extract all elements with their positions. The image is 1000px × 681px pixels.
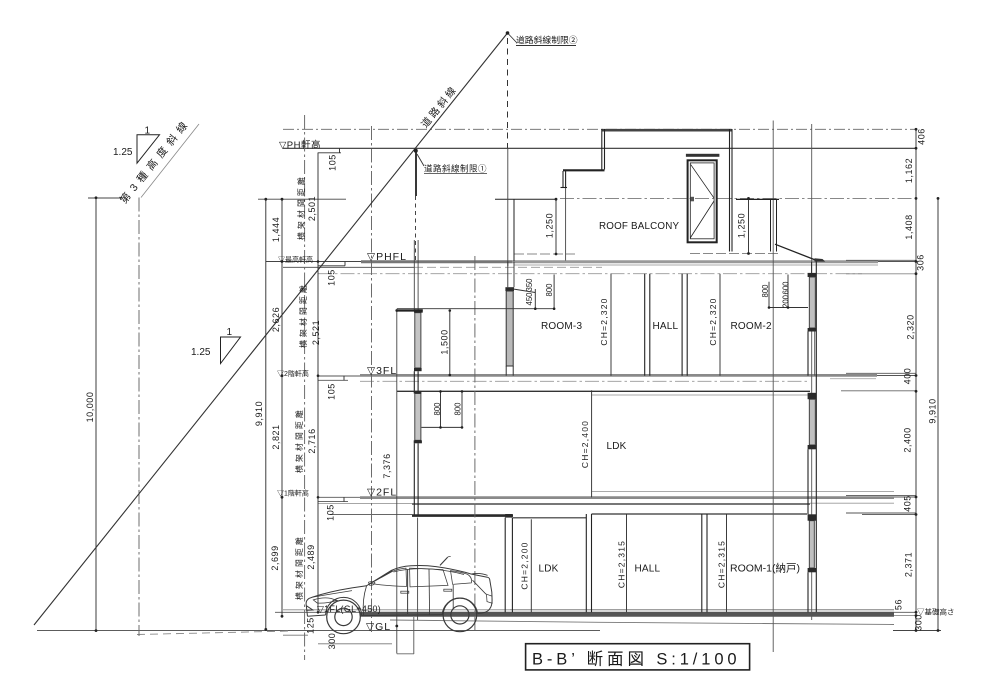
svg-text:1,162: 1,162 — [904, 158, 914, 183]
svg-text:▽PHFL: ▽PHFL — [367, 251, 407, 263]
svg-text:450: 450 — [525, 292, 534, 306]
svg-text:2,716: 2,716 — [307, 428, 317, 453]
svg-text:105: 105 — [326, 504, 336, 521]
svg-text:1.25: 1.25 — [191, 347, 211, 358]
svg-text:▽最高軒高: ▽最高軒高 — [278, 255, 313, 264]
svg-text:▽基礎高さ: ▽基礎高さ — [917, 607, 955, 617]
svg-text:300: 300 — [327, 633, 337, 650]
svg-text:2,821: 2,821 — [271, 424, 281, 449]
svg-text:600: 600 — [782, 281, 791, 295]
svg-text:9,910: 9,910 — [254, 401, 264, 426]
svg-text:56: 56 — [894, 599, 904, 610]
svg-text:2,489: 2,489 — [306, 544, 316, 569]
svg-text:2,626: 2,626 — [271, 307, 281, 332]
svg-text:HALL: HALL — [653, 321, 679, 332]
svg-text:▽2階軒高: ▽2階軒高 — [277, 369, 309, 378]
svg-text:横架材間距離: 横架材間距離 — [298, 282, 308, 348]
svg-text:800: 800 — [761, 284, 770, 298]
svg-text:▽GL: ▽GL — [366, 621, 391, 633]
svg-text:306: 306 — [916, 254, 926, 271]
svg-text:CH=2,320: CH=2,320 — [599, 297, 609, 345]
svg-text:1: 1 — [145, 126, 151, 137]
svg-text:ROOM-2: ROOM-2 — [731, 321, 772, 332]
svg-text:道路斜線制限①: 道路斜線制限① — [424, 164, 487, 174]
svg-text:1,444: 1,444 — [271, 217, 281, 242]
svg-text:横架材間距離: 横架材間距離 — [294, 407, 304, 473]
svg-text:道路斜線制限②: 道路斜線制限② — [516, 34, 578, 45]
svg-text:300: 300 — [914, 614, 924, 631]
svg-text:CH=2,315: CH=2,315 — [717, 540, 727, 588]
svg-text:350: 350 — [525, 278, 534, 292]
svg-text:10,000: 10,000 — [85, 392, 95, 423]
svg-text:B-B’ 断面図 S:1/100: B-B’ 断面図 S:1/100 — [532, 650, 741, 669]
svg-text:800: 800 — [545, 283, 554, 297]
svg-text:406: 406 — [917, 128, 927, 145]
svg-text:200: 200 — [782, 294, 791, 308]
svg-text:LDK: LDK — [539, 564, 559, 575]
svg-text:2,320: 2,320 — [906, 314, 916, 339]
svg-text:1: 1 — [227, 327, 233, 338]
svg-text:2,501: 2,501 — [307, 196, 317, 221]
svg-text:105: 105 — [328, 154, 338, 171]
svg-text:105: 105 — [327, 269, 337, 286]
svg-text:405: 405 — [903, 495, 913, 512]
svg-text:2,699: 2,699 — [270, 545, 280, 570]
svg-text:ROOM-1(納戸): ROOM-1(納戸) — [730, 562, 800, 575]
svg-text:400: 400 — [903, 368, 913, 385]
svg-text:1,250: 1,250 — [737, 213, 747, 238]
svg-text:1,408: 1,408 — [904, 214, 914, 239]
svg-text:1,250: 1,250 — [545, 213, 555, 238]
svg-text:ROOM-3: ROOM-3 — [541, 321, 582, 332]
svg-text:800: 800 — [433, 402, 442, 416]
svg-text:CH=2,320: CH=2,320 — [708, 297, 718, 345]
svg-text:CH=2,200: CH=2,200 — [520, 541, 530, 589]
svg-text:105: 105 — [327, 383, 337, 400]
svg-text:1,500: 1,500 — [440, 329, 450, 354]
svg-text:9,910: 9,910 — [928, 398, 938, 423]
svg-text:CH=2,315: CH=2,315 — [617, 540, 627, 588]
svg-text:ROOF BALCONY: ROOF BALCONY — [599, 221, 680, 232]
svg-text:125: 125 — [306, 617, 316, 634]
svg-text:7,376: 7,376 — [382, 453, 392, 478]
svg-text:2,400: 2,400 — [903, 427, 913, 452]
svg-text:2,371: 2,371 — [904, 552, 914, 577]
svg-text:2,521: 2,521 — [311, 320, 321, 345]
svg-text:▽PH軒高: ▽PH軒高 — [279, 139, 321, 151]
svg-text:LDK: LDK — [607, 441, 627, 452]
svg-text:横架材間距離: 横架材間距離 — [296, 174, 306, 240]
svg-text:CH=2,400: CH=2,400 — [580, 420, 590, 468]
svg-text:1.25: 1.25 — [113, 147, 133, 158]
svg-text:▽3FL: ▽3FL — [367, 365, 397, 377]
svg-text:800: 800 — [454, 402, 463, 416]
svg-text:HALL: HALL — [635, 564, 661, 575]
svg-text:▽1階軒高: ▽1階軒高 — [277, 489, 309, 498]
svg-text:▽2FL: ▽2FL — [367, 486, 397, 498]
svg-text:横架材間距離: 横架材間距離 — [294, 534, 304, 600]
